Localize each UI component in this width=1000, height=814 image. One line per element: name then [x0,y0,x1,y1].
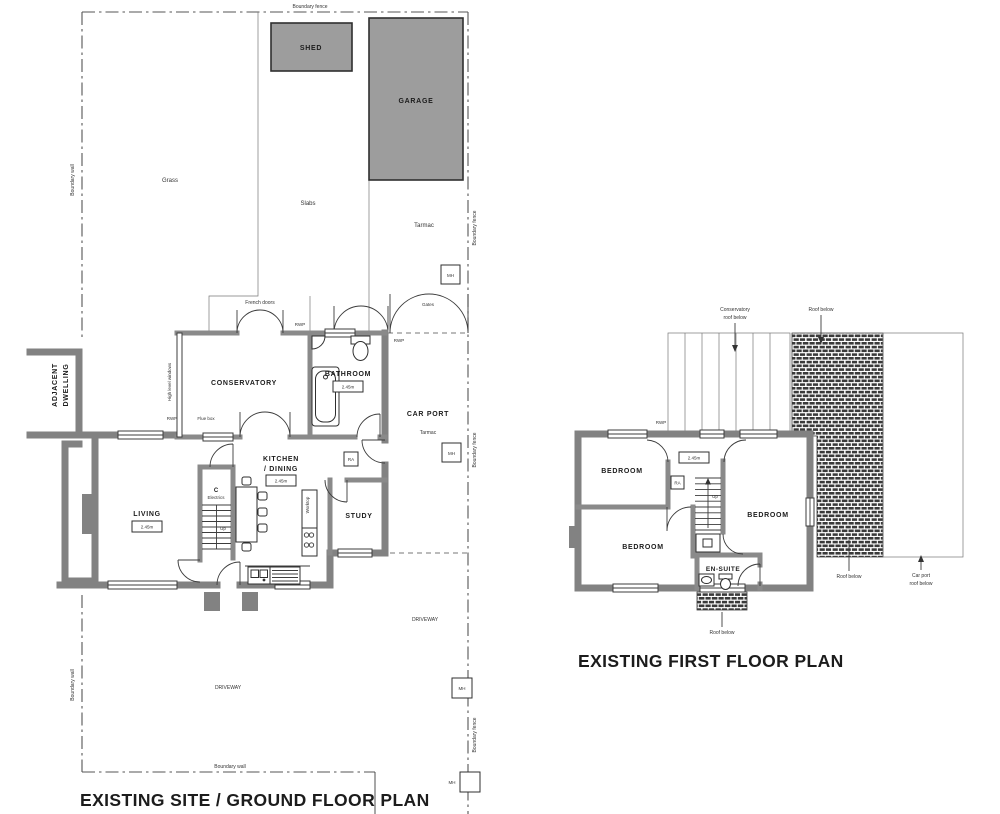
toilet [351,336,370,361]
corner-basin [312,336,325,349]
boundary-wall-left-lower-label: Boundary wall [70,669,76,700]
car-port-roof-area [883,333,963,557]
boundary-fence-right-upper-label: Boundary fence [472,210,478,245]
study-label: STUDY [345,513,372,520]
manhole-label-3: MH [459,686,466,691]
manholes: MH MH MH MH [441,265,480,792]
ff-window-landing-north [700,430,724,438]
boundary-fence-top-label: Boundary fence [292,4,327,10]
ensuite-label: EN-SUITE [706,566,741,573]
driveway-label-centre: DRIVEWAY [215,685,242,691]
boundary-fence-right-lower-label: Boundary fence [472,717,478,752]
french-doors-label: French doors [245,300,275,306]
adjacent-dwelling: ADJACENT DWELLING [30,352,95,581]
manhole-box-4 [460,772,480,792]
roof-below-top-label: Roof below [808,307,833,313]
stairs-ground [202,505,231,549]
gf-radiator-label: RA [348,457,354,462]
gf-window-living-south [108,581,177,589]
gate-swing-arcs [334,294,468,333]
ff-chimney-breast [569,526,579,548]
shed: SHED [271,23,352,71]
boundary-wall-left-upper-label: Boundary wall [70,164,76,195]
ff-bedroom2-door [667,507,691,531]
ensuite-toilet [719,574,732,590]
worktop-label: Worktop [305,496,310,513]
electrics-label: Electrics [207,495,225,500]
gf-hall-door [210,444,233,467]
living-label: LIVING [133,511,161,518]
ff-up-label: Up [712,494,718,499]
gf-window-study-south [338,549,372,557]
airing-cupboard [696,534,720,552]
bathroom-label: BATHROOM [325,371,371,378]
ff-window-bedroom1-north [608,430,647,438]
grass-edge-line [209,12,258,331]
garage-label: GARAGE [399,98,434,105]
flue-box-label: Flue box [197,416,215,421]
tarmac-label: Tarmac [414,223,434,229]
driveway-label-right: DRIVEWAY [412,617,439,623]
gates-label: Gates [422,302,435,307]
bathroom-height: 2.45m [342,385,355,390]
gf-window-conservatory-back [203,433,233,441]
gf-french-doors-garden [237,310,283,333]
kitchen-sink-unit [245,566,310,584]
adjacent-dwelling-label-2: DWELLING [63,364,70,407]
living-height: 2.45m [141,525,154,530]
gf-bathroom-door [357,414,380,437]
bedroom3-label: BEDROOM [747,512,788,519]
porch-canopy-roof [697,592,747,610]
ff-bedroom3-door [724,440,746,462]
gf-living-door [178,560,200,582]
plan-sheet: Boundary fence Boundary wall Boundary wa… [0,0,1000,814]
stairs-up-label: Up [220,526,226,531]
gf-porch-post-left [204,592,220,611]
ff-ensuite-door [738,564,760,586]
conservatory-roof-arrowhead [732,345,738,352]
ff-window-bedroom3-east [806,498,814,526]
conservatory-roof-label-1: Conservatory [720,307,750,313]
adjacent-dwelling-label-1: ADJACENT [52,363,59,407]
ground-floor-plan-title: EXISTING SITE / GROUND FLOOR PLAN [80,790,430,810]
kitchen-label-2: / DINING [264,466,298,473]
roof-below-left-label: Roof below [836,574,861,580]
manhole-label-2: MH [448,451,455,456]
car-port-tarmac-label: Tarmac [420,430,437,436]
bedroom1-label: BEDROOM [601,468,642,475]
bedroom2-label: BEDROOM [622,544,663,551]
ff-rwp-label: RWP [656,420,666,425]
grass-label: Grass [162,178,178,184]
carport-roof-arrowhead [918,555,924,562]
slabs-label: Slabs [300,201,315,207]
stairs-first [695,478,721,530]
boundary-wall-bottom-label: Boundary wall [214,764,245,770]
conservatory-roof-label-2: roof below [723,315,746,321]
ff-bedroom1-door [647,440,668,462]
garage: GARAGE [369,18,463,180]
ensuite-basin [699,574,714,586]
boundary-fence-right-mid-label: Boundary fence [472,432,478,467]
conservatory-roof-glazing-bars [685,333,770,433]
rwp-label-1: RWP [295,322,305,327]
gate-leaf-lines [334,294,468,333]
kitchen-height: 2.45m [275,479,288,484]
canopy-roof-label: Roof below [709,630,734,636]
gf-chimney-breast [82,494,96,534]
gf-window-north-west [118,431,163,439]
rwp-label-3: RWP [167,416,177,421]
gf-porch-post-right [242,592,258,611]
ff-radiator-label: RA [674,481,680,486]
kitchen-label-1: KITCHEN [263,456,299,463]
ff-window-bedroom3-north [740,430,777,438]
floor-plan-drawing: Boundary fence Boundary wall Boundary wa… [0,0,1000,814]
conservatory-roof-area [668,333,790,433]
gates: Gates [334,294,468,333]
carport-roof-label-1: Car port [912,573,931,579]
high-level-windows-label: High level windows [167,362,172,401]
gf-french-doors-kitchen [240,412,290,437]
dining-table [236,477,267,551]
car-port-label: CAR PORT [407,411,449,418]
car-port: CAR PORT Tarmac [390,411,468,553]
first-floor-plan-title: EXISTING FIRST FLOOR PLAN [578,651,844,671]
ff-window-bedroom2-south [613,584,658,592]
shed-label: SHED [300,45,322,52]
gf-conservatory-glazed-wall [177,333,182,437]
conservatory-label: CONSERVATORY [211,380,277,387]
cupboard-label: C [214,488,219,494]
manhole-label-1: MH [447,273,454,278]
ff-corridor-door [723,534,743,554]
carport-roof-label-2: roof below [909,581,932,587]
rwp-label-2: RWP [394,338,404,343]
manhole-label-4: MH [449,780,456,785]
ff-height: 2.45m [688,456,701,461]
